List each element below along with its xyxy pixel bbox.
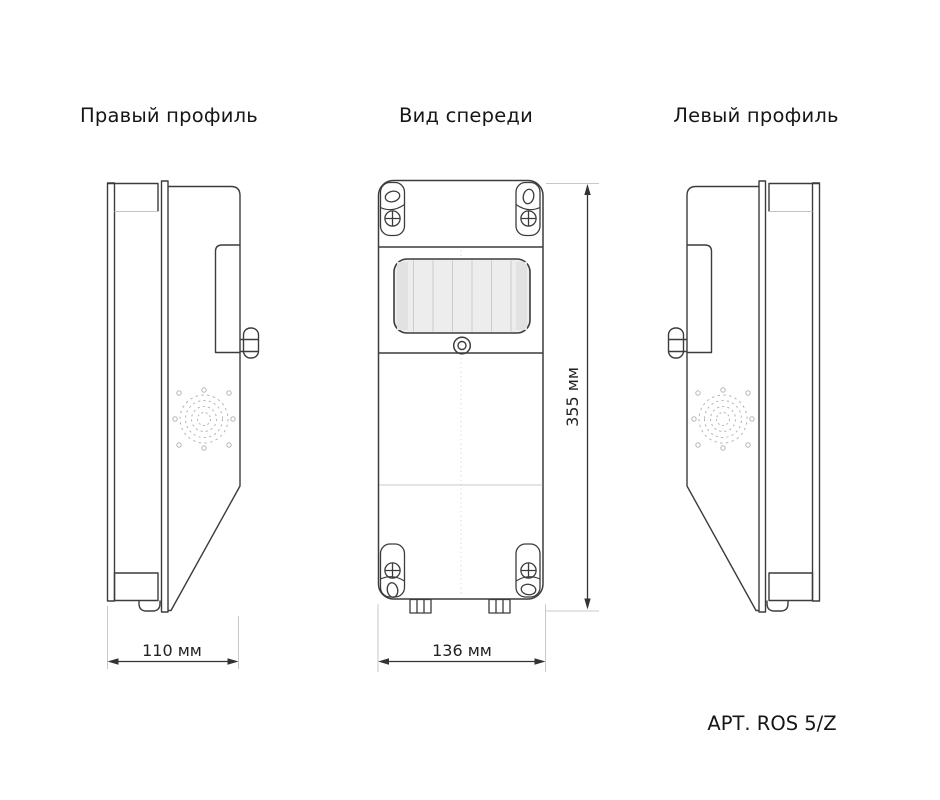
right-profile-drawing [108, 181, 259, 612]
arrowhead-right [535, 658, 546, 664]
dimension-110: 110 мм [108, 606, 239, 669]
oval-hole [522, 188, 535, 204]
drawing-canvas: Правый профиль Вид спереди Левый профиль [0, 0, 940, 800]
dimension-355: 355 мм [546, 184, 599, 612]
arrowhead-right [228, 658, 239, 664]
oval-hole [384, 190, 401, 204]
arrowhead-left [378, 658, 389, 664]
oval-hole [386, 582, 399, 598]
mounting-ear-bottom-right [516, 544, 540, 597]
dimension-110-label: 110 мм [142, 641, 202, 660]
arrowhead-bottom [584, 599, 590, 610]
cross-screw [385, 211, 400, 226]
cross-screw [385, 563, 400, 578]
cross-screw [521, 563, 536, 578]
arrowhead-top [584, 184, 590, 195]
left-profile-drawing [669, 181, 820, 612]
dimension-355-label: 355 мм [563, 367, 582, 427]
technical-drawing-svg: 110 мм 136 мм 355 мм [0, 0, 940, 800]
panel-screw [454, 337, 471, 354]
article-number: АРТ. ROS 5/Z [647, 712, 897, 735]
cable-gland-right [489, 600, 510, 614]
cross-screw [521, 211, 536, 226]
front-view-drawing [379, 181, 544, 614]
dimension-136-label: 136 мм [432, 641, 492, 660]
oval-hole [521, 583, 537, 595]
mounting-ear-top-left [381, 183, 405, 236]
mounting-ear-bottom-left [381, 544, 405, 598]
lens-window [394, 259, 530, 333]
dimension-136: 136 мм [378, 604, 546, 672]
mounting-ear-top-right [516, 183, 540, 236]
arrowhead-left [108, 658, 119, 664]
cable-gland-left [410, 600, 431, 614]
